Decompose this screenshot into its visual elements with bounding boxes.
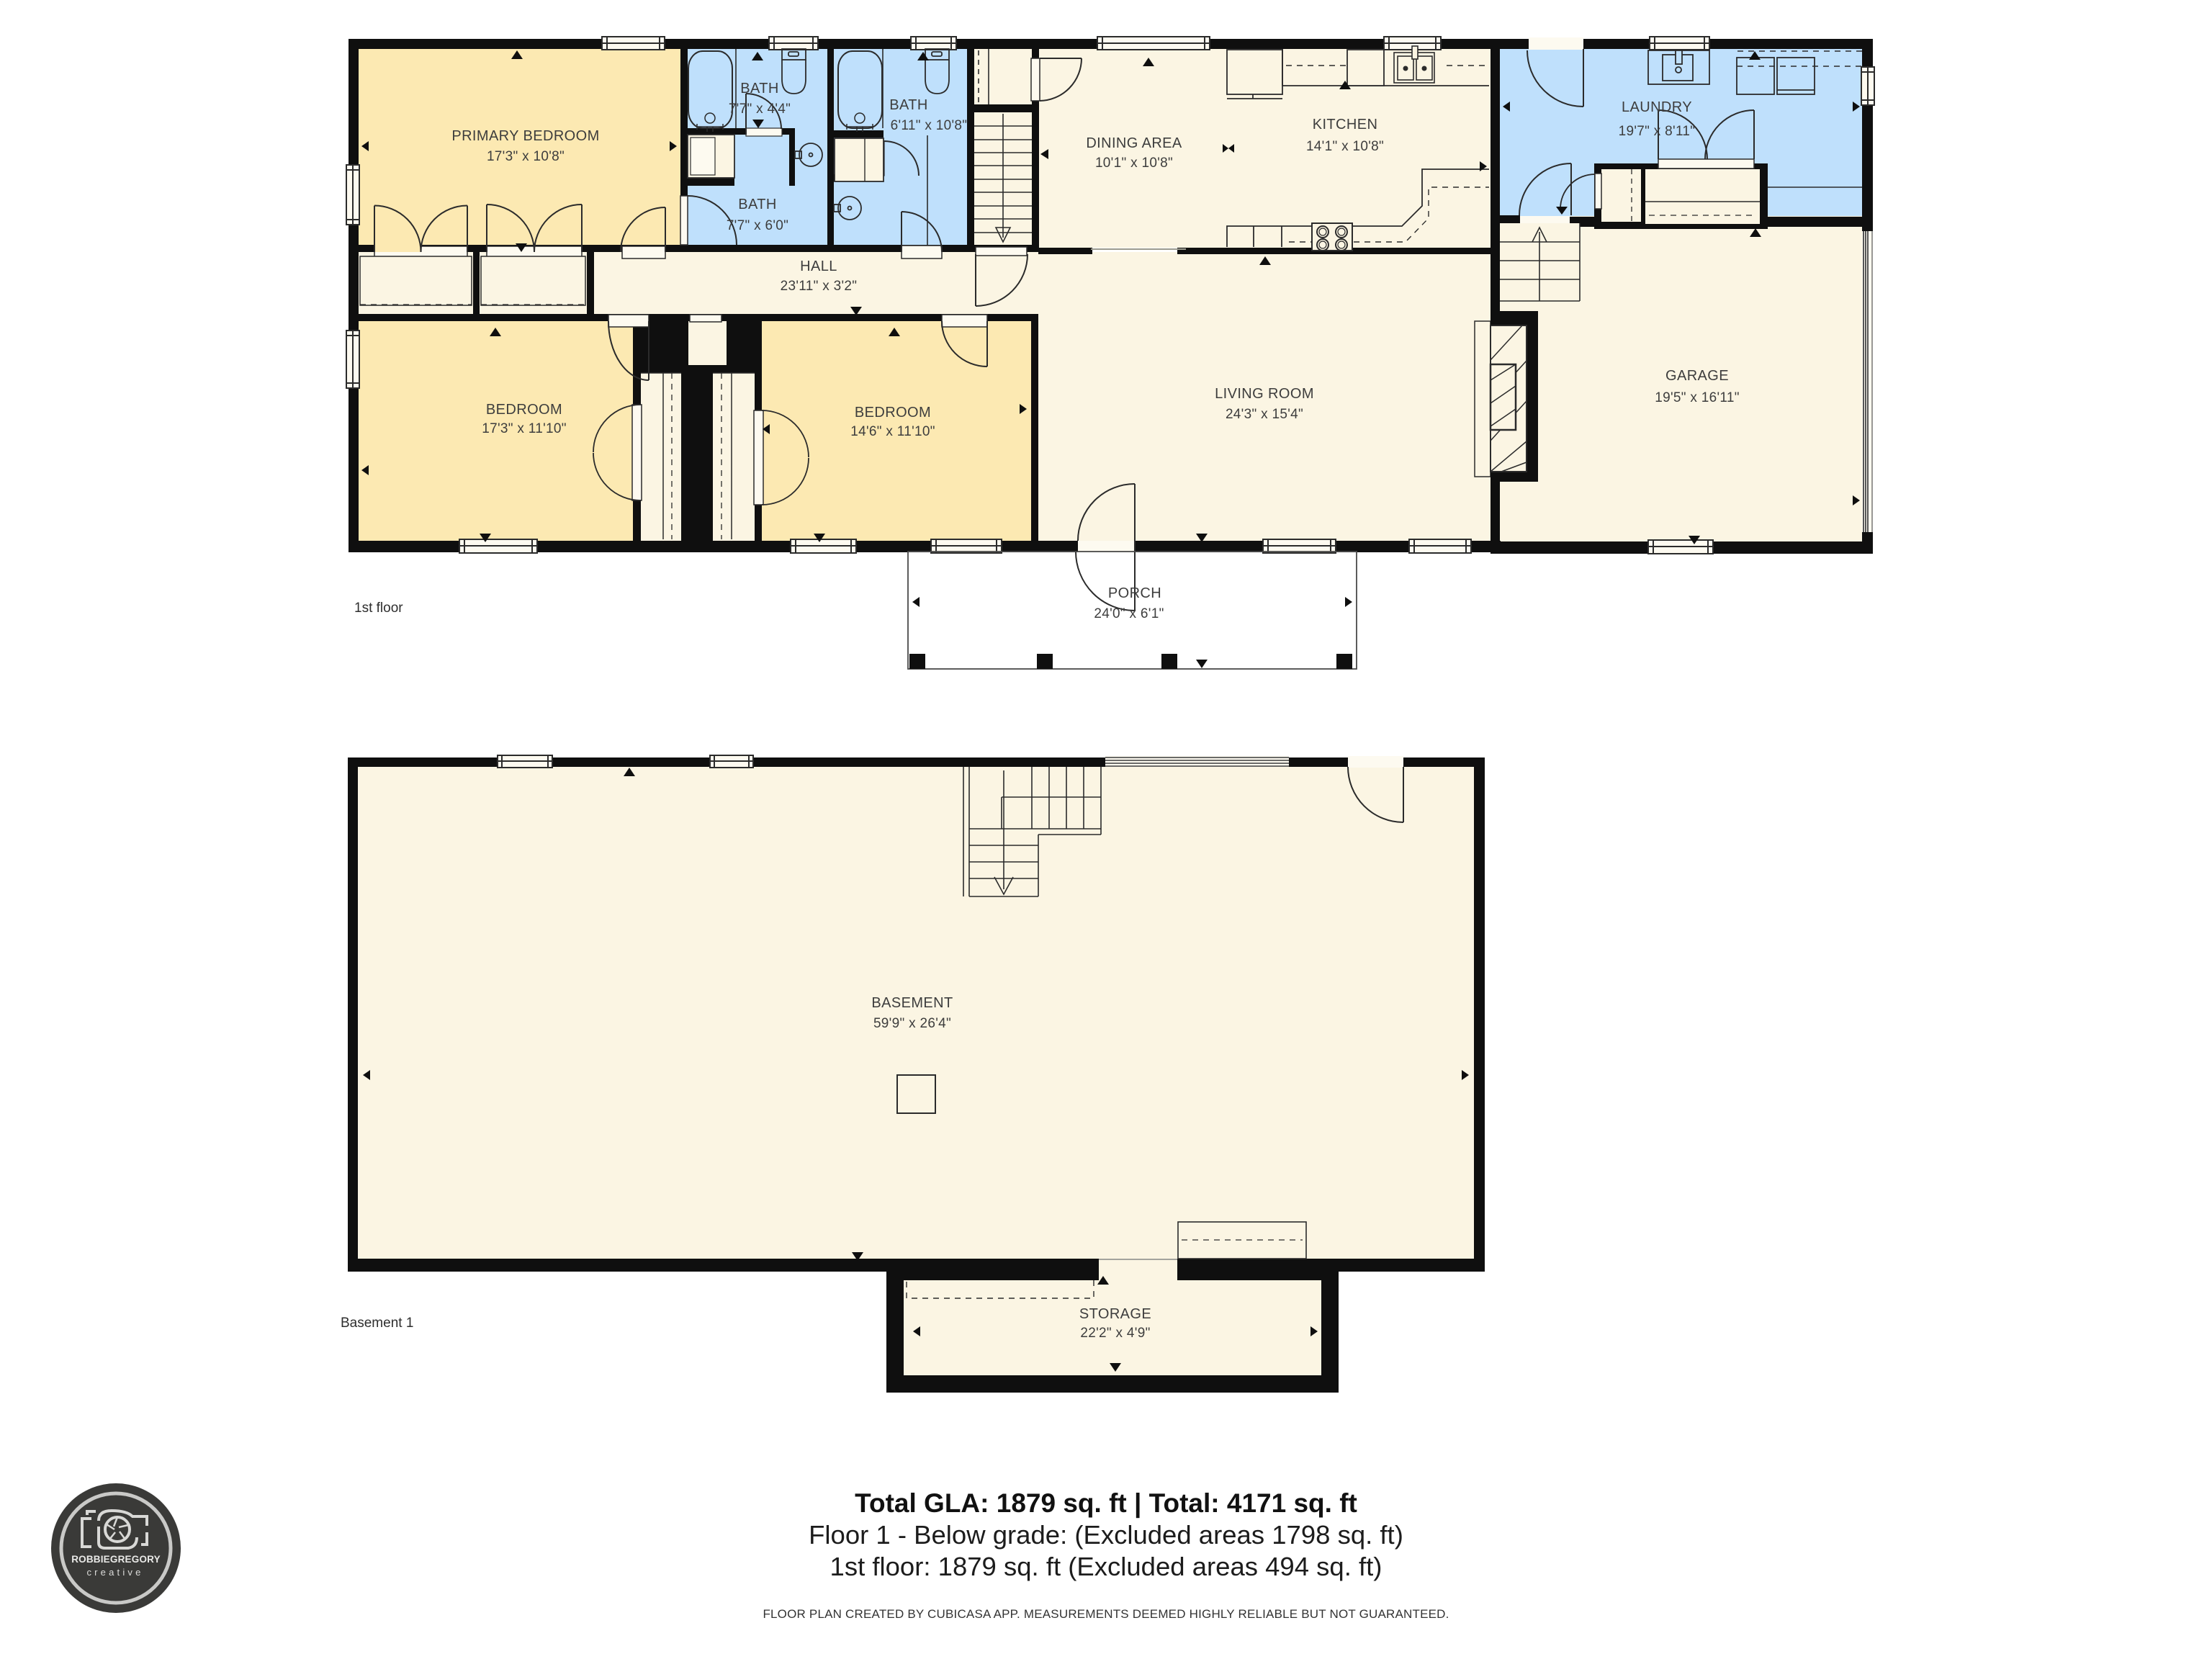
svg-text:BEDROOM: BEDROOM <box>486 402 562 418</box>
svg-text:19'7" x 8'11": 19'7" x 8'11" <box>1619 124 1696 139</box>
svg-text:14'1" x 10'8": 14'1" x 10'8" <box>1306 139 1384 154</box>
svg-text:GARAGE: GARAGE <box>1665 368 1729 384</box>
svg-text:22'2" x 4'9": 22'2" x 4'9" <box>1080 1326 1150 1341</box>
svg-text:24'3" x 15'4": 24'3" x 15'4" <box>1226 407 1303 422</box>
svg-text:Basement 1: Basement 1 <box>341 1316 413 1331</box>
svg-text:10'1" x 10'8": 10'1" x 10'8" <box>1095 156 1173 171</box>
svg-text:Floor 1 - Below grade: (Exclud: Floor 1 - Below grade: (Excluded areas 1… <box>809 1520 1403 1550</box>
svg-text:ROBBIEGREGORY: ROBBIEGREGORY <box>71 1554 161 1565</box>
svg-text:STORAGE: STORAGE <box>1079 1306 1151 1322</box>
svg-text:BASEMENT: BASEMENT <box>871 995 953 1011</box>
svg-text:7'7" x 6'0": 7'7" x 6'0" <box>727 218 788 233</box>
svg-text:17'3" x 10'8": 17'3" x 10'8" <box>487 149 565 164</box>
svg-text:1st floor: 1879 sq. ft (Exclud: 1st floor: 1879 sq. ft (Excluded areas 4… <box>830 1552 1382 1581</box>
svg-text:BATH: BATH <box>740 81 778 96</box>
svg-text:6'11" x 10'8": 6'11" x 10'8" <box>891 118 968 133</box>
svg-text:creative: creative <box>86 1567 143 1578</box>
svg-text:PRIMARY BEDROOM: PRIMARY BEDROOM <box>451 128 599 144</box>
svg-text:7'7" x 4'4": 7'7" x 4'4" <box>729 102 791 117</box>
svg-text:DINING AREA: DINING AREA <box>1086 135 1182 151</box>
svg-text:23'11" x 3'2": 23'11" x 3'2" <box>781 279 858 294</box>
svg-text:KITCHEN: KITCHEN <box>1313 117 1378 132</box>
svg-text:LIVING ROOM: LIVING ROOM <box>1215 386 1314 402</box>
svg-text:BATH: BATH <box>889 97 927 113</box>
svg-text:24'0" x 6'1": 24'0" x 6'1" <box>1094 606 1164 621</box>
svg-text:Total GLA: 1879 sq. ft | Total: Total GLA: 1879 sq. ft | Total: 4171 sq.… <box>855 1488 1357 1519</box>
svg-text:59'9" x 26'4": 59'9" x 26'4" <box>873 1016 951 1031</box>
svg-text:HALL: HALL <box>800 258 837 274</box>
svg-text:FLOOR PLAN CREATED BY CUBICASA: FLOOR PLAN CREATED BY CUBICASA APP. MEAS… <box>763 1607 1449 1621</box>
svg-text:BEDROOM: BEDROOM <box>855 405 931 421</box>
svg-text:1st floor: 1st floor <box>354 601 403 616</box>
svg-text:17'3" x 11'10": 17'3" x 11'10" <box>482 421 567 436</box>
svg-text:PORCH: PORCH <box>1108 585 1161 601</box>
svg-text:BATH: BATH <box>738 197 776 212</box>
svg-text:LAUNDRY: LAUNDRY <box>1622 99 1692 115</box>
svg-text:14'6" x 11'10": 14'6" x 11'10" <box>850 424 935 439</box>
svg-text:19'5" x 16'11": 19'5" x 16'11" <box>1655 390 1740 405</box>
